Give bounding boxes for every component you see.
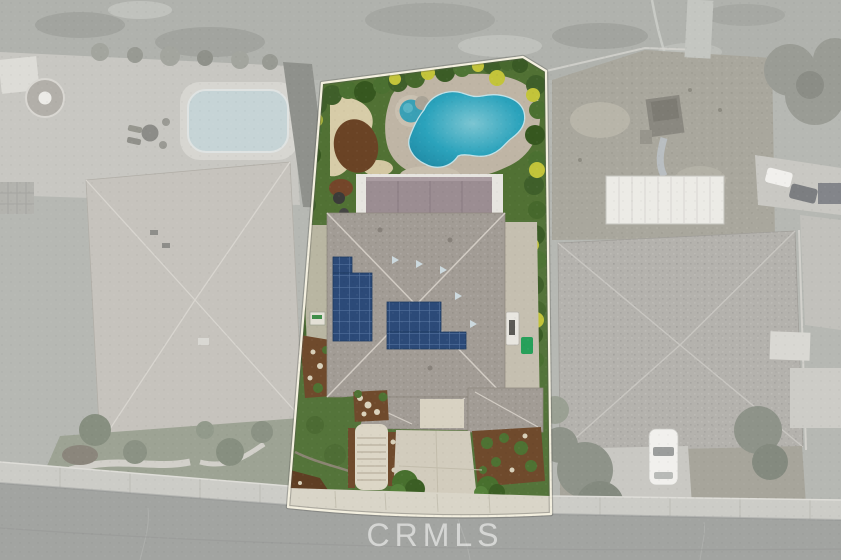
aerial-scene [0, 0, 841, 560]
crmls-watermark: CRMLS [330, 517, 540, 554]
photo-grain [0, 0, 841, 560]
aerial-photo: CRMLS [0, 0, 841, 560]
